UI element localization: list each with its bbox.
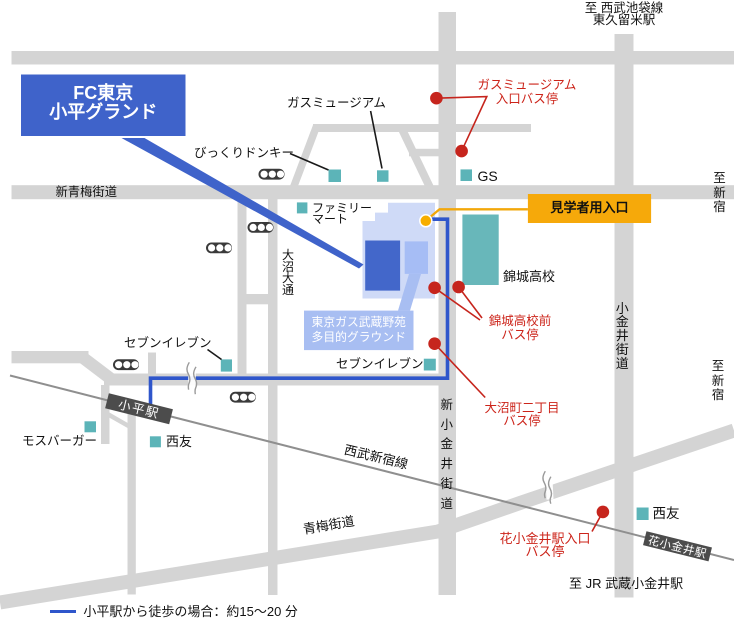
svg-text:花小金井駅: 花小金井駅: [647, 533, 709, 561]
